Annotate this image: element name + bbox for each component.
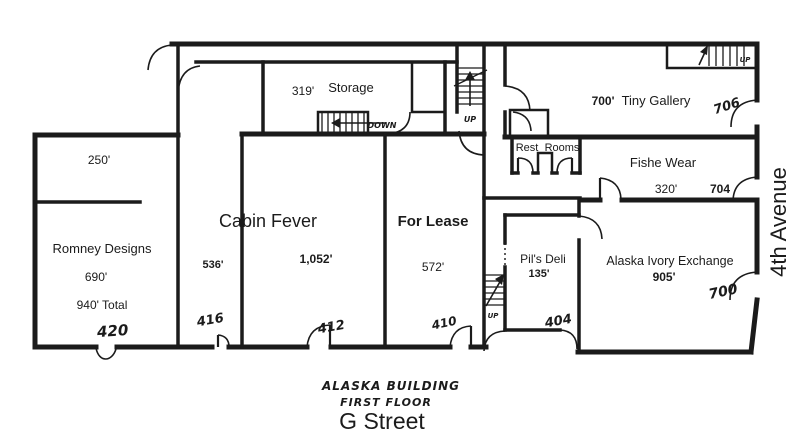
door-arc-410 (450, 326, 471, 347)
unit-number-420: 420 (95, 321, 128, 341)
room-label-cabin-fever: Cabin Fever (219, 211, 317, 231)
room-label-for-lease: For Lease (398, 213, 469, 230)
unit-number-412: 412 (316, 318, 346, 338)
stairs-down-label: DOWN (368, 121, 397, 130)
street-label-4th-avenue: 4th Avenue (766, 167, 791, 277)
room-label-storage: Storage (328, 80, 374, 95)
room-sqft-250: 250' (88, 153, 110, 167)
room-sqft-storage: 319' (292, 84, 314, 98)
stairs-up-middle-label: UP (464, 115, 476, 124)
stairs-up-top-right-label: UP (740, 56, 752, 64)
door-arc-ivory (579, 216, 602, 239)
restroom-label-rooms: Rooms (545, 142, 580, 154)
unit-number-416: 416 (195, 311, 225, 331)
stairs-up-middle (454, 68, 487, 106)
room-total-romney: 940' Total (77, 298, 128, 312)
room-sqft-cabin-fever: 1,052' (300, 252, 333, 266)
door-arc-404 (560, 330, 577, 349)
room-label-tiny-gallery: Tiny Gallery (622, 93, 691, 108)
room-sqft-536: 536' (203, 259, 224, 271)
door-arc-tiny-gallery (505, 86, 530, 111)
unit-number-700: 700 (707, 281, 739, 303)
street-label-g-street: G Street (339, 408, 425, 434)
door-arc-restroom-right (557, 158, 572, 173)
room-sqft-fishe-wear: 320' (655, 182, 677, 196)
plan-title-building: ALASKA BUILDING (321, 379, 460, 393)
room-label-pils-deli: Pil's Deli (520, 252, 566, 266)
room-label-fishe-wear: Fishe Wear (630, 155, 697, 170)
room-sqft-tiny-gallery: 700' (592, 94, 615, 108)
stairs-up-deli-label: UP (488, 312, 500, 320)
room-label-ivory-exchange: Alaska Ivory Exchange (606, 254, 733, 268)
stairs-up-deli (485, 274, 504, 306)
room-sqft-pils-deli: 135' (529, 268, 550, 280)
room-sqft-ivory-exchange: 905' (653, 270, 676, 284)
entry-door-arc-top-left (148, 45, 200, 92)
door-arc-vestibule (513, 112, 531, 131)
room-sqft-romney: 690' (85, 270, 107, 284)
unit-number-410: 410 (429, 314, 457, 333)
unit-number-404: 404 (543, 312, 573, 332)
door-arc-420 (96, 348, 116, 359)
floor-plan-svg: 250' Romney Designs 690' 940' Total 420 … (0, 0, 800, 437)
room-label-romney-designs: Romney Designs (53, 241, 152, 256)
floor-plan: 250' Romney Designs 690' 940' Total 420 … (0, 0, 800, 437)
unit-number-706: 706 (712, 95, 742, 118)
room-sqft-for-lease: 572' (422, 260, 444, 274)
unit-number-704: 704 (710, 182, 730, 196)
stairs-up-top-right (699, 45, 744, 66)
interior-walls (35, 44, 757, 352)
restroom-label-rest: Rest (516, 142, 539, 154)
door-arc-fishe-wear (600, 178, 621, 199)
door-arc-restroom-left (518, 158, 533, 173)
